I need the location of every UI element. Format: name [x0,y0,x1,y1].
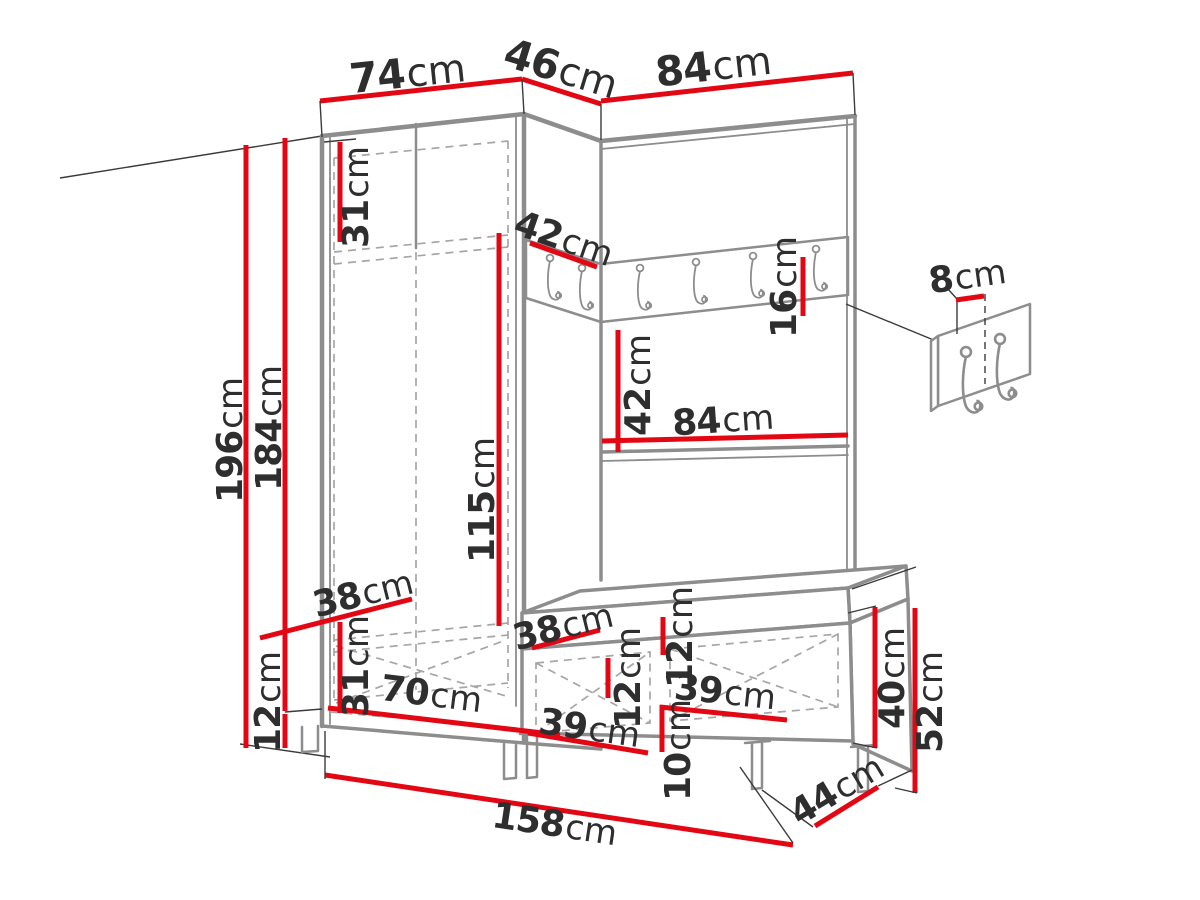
dim-label-bottom-section-height: 31cm [336,615,377,717]
dim-label-total-width-bottom: 158cm [489,795,620,854]
coat-hook-icon [637,265,652,310]
dim-label-rail-to-shelf-height: 42cm [618,334,659,436]
dimension-diagram-page: 74cm 46cm 84cm 31cm 42cm 16cm 115cm 196c… [0,0,1200,900]
hook-plate-detail [846,288,1030,413]
coat-hook-icon [693,259,708,304]
dim-label-bench-depth-right: 44cm [783,746,891,834]
dim-label-wardrobe-width-top: 74cm [347,43,468,103]
dim-label-bench-total-height: 52cm [910,651,951,753]
coat-hook-icon [750,253,765,298]
dim-label-hanging-space-height: 115cm [462,437,503,563]
detail-leader-line [846,304,936,341]
dim-label-bench-body-height: 40cm [872,627,913,729]
dim-label-total-height: 196cm [210,377,251,503]
coat-hook-icon [579,265,594,310]
dim-label-plinth-height: 12cm [248,651,289,753]
furniture-dimension-diagram: 74cm 46cm 84cm 31cm 42cm 16cm 115cm 196c… [0,0,1200,900]
dim-label-corner-width-top: 46cm [498,29,623,109]
hook-plate-edge [931,336,938,411]
dim-label-bench-leg-height: 10cm [658,699,699,801]
dim-label-shelf-width: 84cm [671,397,776,445]
dim-label-top-shelf-height: 31cm [336,146,377,248]
coat-hook-icon [813,246,828,291]
panel-shelf [602,446,848,461]
coat-hook-icon [547,255,562,300]
dim-label-hook-spacing-detail: 8cm [926,251,1009,302]
dim-label-hook-rail-height: 16cm [764,236,805,338]
dim-label-interior-width: 70cm [378,668,484,721]
dim-label-side-panel-height: 184cm [249,365,290,491]
